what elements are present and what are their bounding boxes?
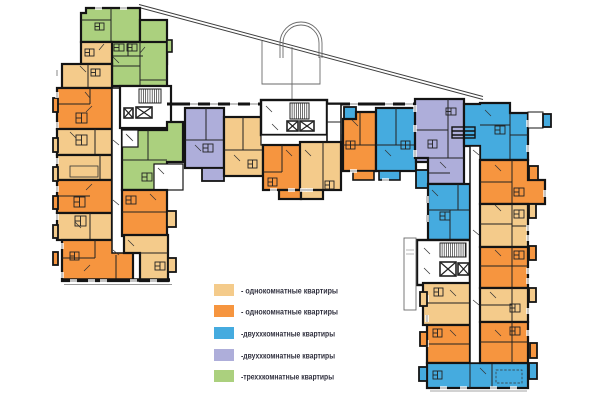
svg-text:-двуххкомнатные квартиры: -двуххкомнатные квартиры xyxy=(241,330,335,339)
svg-text:-треххкомнатные квартиры: -треххкомнатные квартиры xyxy=(241,373,334,382)
svg-text:- однокомнатные квартиры: - однокомнатные квартиры xyxy=(241,308,338,317)
svg-text:-двуххкомнатные квартиры: -двуххкомнатные квартиры xyxy=(241,352,335,361)
svg-text:- однокомнатные квартиры: - однокомнатные квартиры xyxy=(241,287,338,296)
